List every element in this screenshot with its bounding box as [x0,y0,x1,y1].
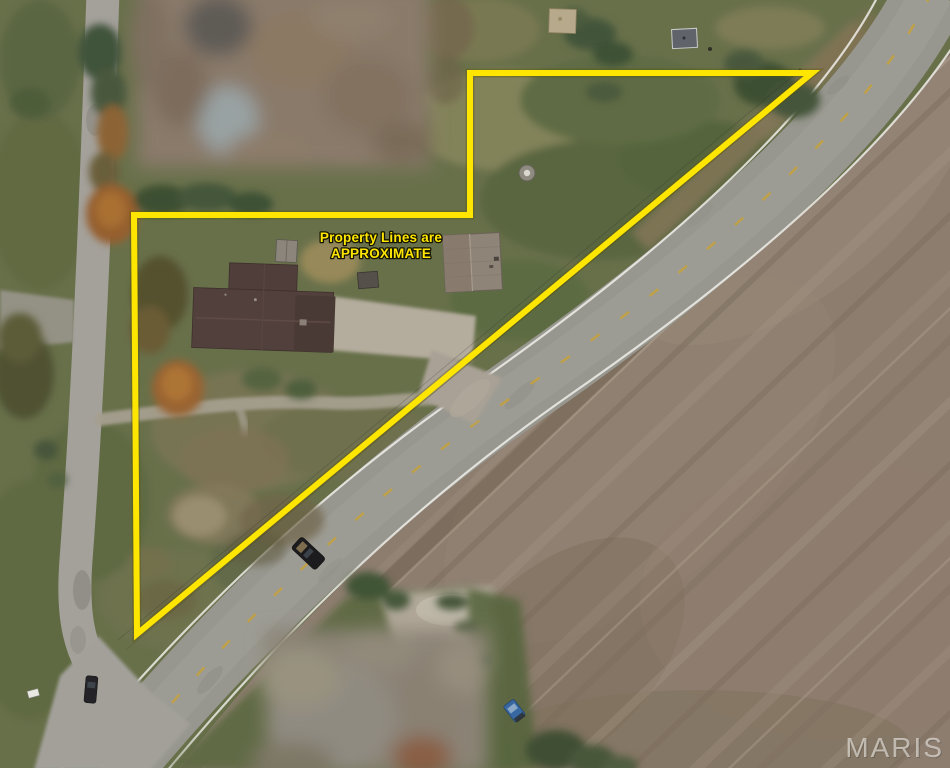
detached-garage [443,233,503,293]
privacy-blur-topleft [130,0,432,168]
shed-small-dark [357,271,378,289]
utility-shed [672,28,698,48]
disclaimer-text-line2: APPROXIMATE [331,246,431,261]
aerial-photo: Property Lines are APPROXIMATE MARIS MAR… [0,0,950,768]
shed-small-gray [275,239,297,262]
parked-car [84,676,98,704]
disclaimer-text-line1: Property Lines are [320,230,442,245]
maris-watermark: MARIS [845,732,944,763]
privacy-blur-bottom [250,628,488,768]
aerial-photo-canvas: Property Lines are APPROXIMATE MARIS MAR… [0,0,950,768]
gravel-pad-square [549,9,577,34]
well-cover [519,165,535,181]
pole [708,47,712,51]
